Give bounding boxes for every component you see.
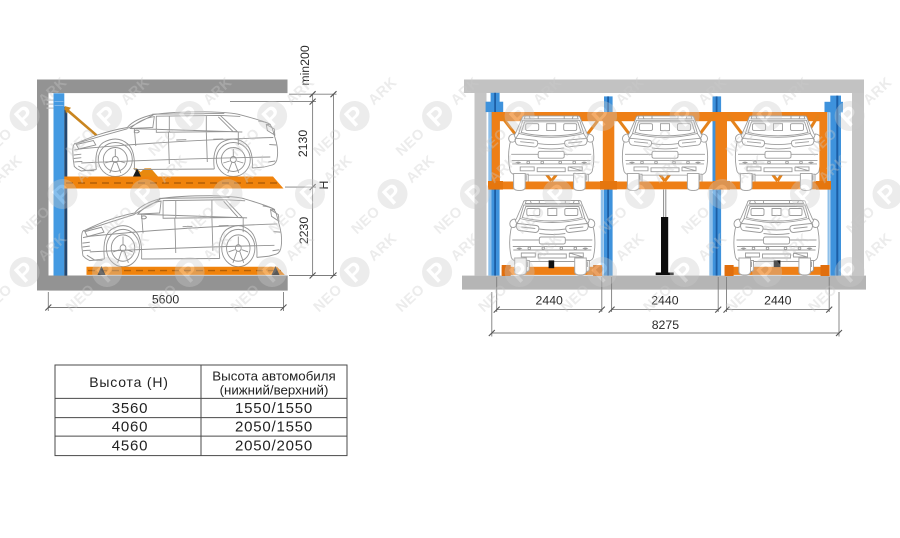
svg-text:2440: 2440 xyxy=(764,293,792,307)
svg-text:8275: 8275 xyxy=(652,318,680,332)
svg-text:4060: 4060 xyxy=(112,418,149,435)
svg-text:NEO: NEO xyxy=(393,282,428,316)
svg-text:NEO: NEO xyxy=(311,282,346,316)
svg-text:P: P xyxy=(92,100,123,132)
svg-text:NEO: NEO xyxy=(393,126,428,160)
svg-text:3560: 3560 xyxy=(112,400,149,417)
svg-text:ARK: ARK xyxy=(613,230,648,264)
svg-text:ARK: ARK xyxy=(0,152,26,186)
svg-text:NEO: NEO xyxy=(431,204,466,238)
svg-text:(нижний/верхний): (нижний/верхний) xyxy=(220,383,329,398)
svg-text:Высота (Н): Высота (Н) xyxy=(89,374,168,390)
svg-text:NEO: NEO xyxy=(679,204,714,238)
svg-text:2050/2050: 2050/2050 xyxy=(235,437,313,454)
svg-text:P: P xyxy=(339,256,370,288)
svg-text:P: P xyxy=(377,178,408,210)
svg-text:ARK: ARK xyxy=(861,74,896,108)
svg-text:NEO: NEO xyxy=(311,126,346,160)
svg-text:ARK: ARK xyxy=(366,230,401,264)
svg-text:2130: 2130 xyxy=(296,130,310,158)
svg-text:P: P xyxy=(339,100,370,132)
svg-text:4560: 4560 xyxy=(112,437,149,454)
svg-text:ARK: ARK xyxy=(321,152,356,186)
svg-text:Высота автомобиля: Высота автомобиля xyxy=(212,369,335,384)
svg-text:ARK: ARK xyxy=(366,74,401,108)
svg-text:P: P xyxy=(9,256,40,288)
svg-text:P: P xyxy=(422,100,453,132)
svg-text:ARK: ARK xyxy=(861,230,896,264)
svg-text:P: P xyxy=(422,256,453,288)
svg-text:P: P xyxy=(9,100,40,132)
svg-text:NEO: NEO xyxy=(349,204,384,238)
svg-text:1550/1550: 1550/1550 xyxy=(235,400,313,417)
svg-text:ARK: ARK xyxy=(403,152,438,186)
svg-text:NEO: NEO xyxy=(0,282,16,316)
svg-text:2050/1550: 2050/1550 xyxy=(235,418,313,435)
